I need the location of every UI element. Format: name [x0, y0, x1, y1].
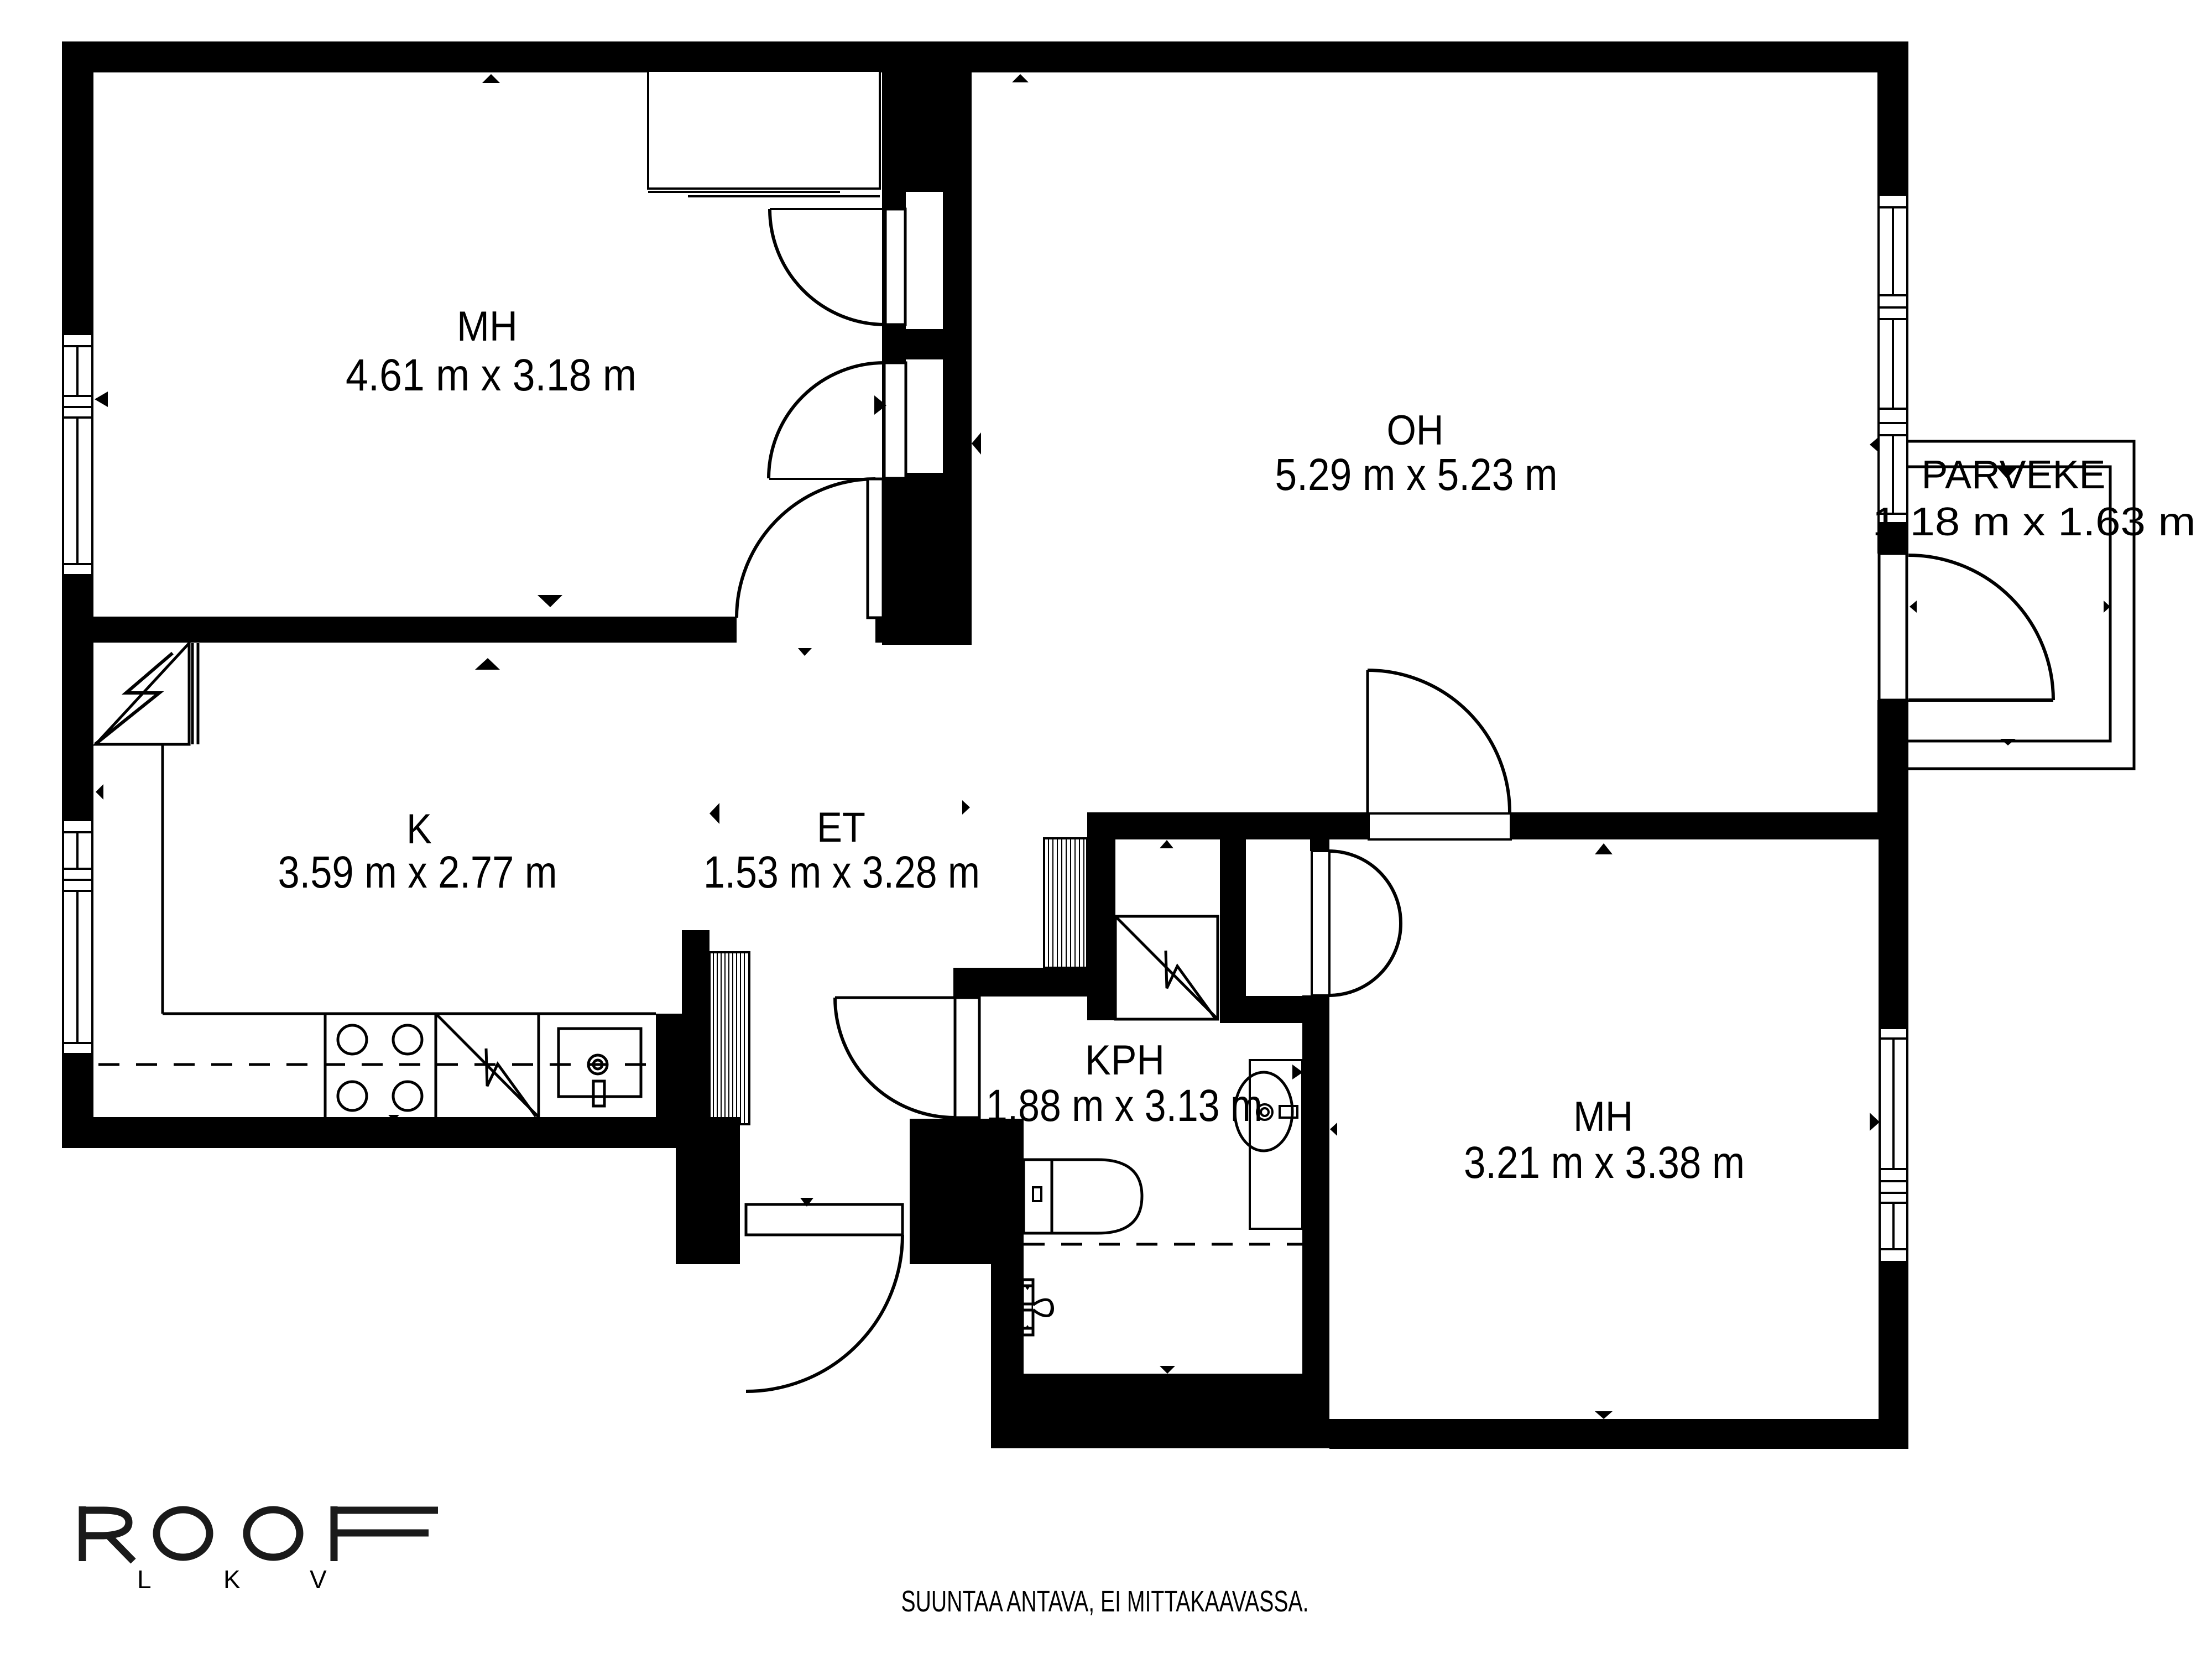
svg-text:PARVEKE: PARVEKE [1922, 453, 2106, 497]
svg-text:1.88 m x 3.13 m: 1.88 m x 3.13 m [986, 1081, 1262, 1131]
svg-text:MH: MH [457, 303, 518, 350]
svg-text:MH: MH [1573, 1093, 1633, 1140]
svg-text:K: K [223, 1565, 241, 1594]
svg-text:3.21 m x 3.38 m: 3.21 m x 3.38 m [1464, 1138, 1745, 1188]
svg-text:V: V [310, 1565, 327, 1594]
svg-text:OH: OH [1387, 407, 1444, 454]
svg-text:1.53 m x 3.28 m: 1.53 m x 3.28 m [703, 847, 980, 898]
svg-text:4.61 m x 3.18 m: 4.61 m x 3.18 m [346, 350, 637, 400]
svg-text:KPH: KPH [1085, 1037, 1165, 1084]
svg-text:L: L [137, 1565, 152, 1594]
svg-text:5.29 m x 5.23 m: 5.29 m x 5.23 m [1275, 450, 1558, 500]
svg-text:3.59 m x 2.77 m: 3.59 m x 2.77 m [278, 847, 557, 898]
svg-text:1.18 m x 1.63 m: 1.18 m x 1.63 m [1872, 500, 2196, 544]
svg-text:K: K [406, 806, 432, 853]
svg-text:ET: ET [817, 804, 865, 851]
svg-text:SUUNTAA ANTAVA, EI MITTAKAAVAS: SUUNTAA ANTAVA, EI MITTAKAAVASSA. [901, 1585, 1309, 1618]
